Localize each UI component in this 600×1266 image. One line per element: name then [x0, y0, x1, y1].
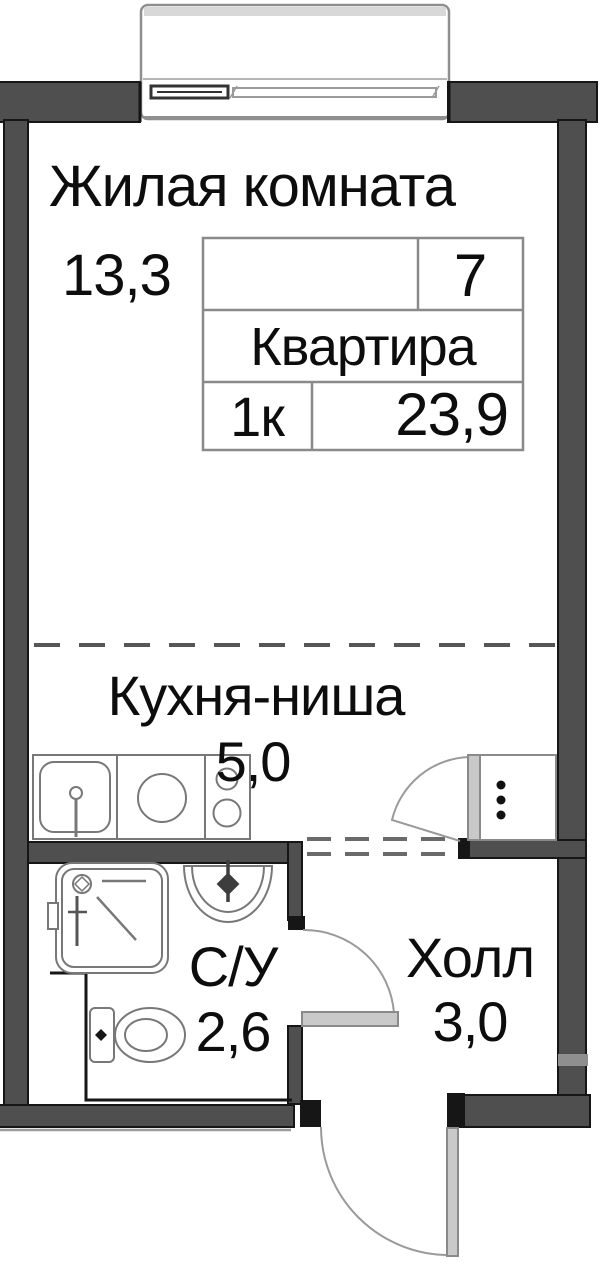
balcony-outline	[141, 5, 449, 119]
entry-door-right-jamb	[447, 1093, 465, 1127]
bathroom-door-leaf	[302, 1012, 398, 1026]
room-area-bathroom: 2,6	[196, 1000, 271, 1063]
wall-bottom-right	[455, 1095, 590, 1127]
wall-bottom-left	[0, 1105, 294, 1127]
apartment-rooms-count: 1к	[230, 385, 285, 448]
toilet	[90, 1008, 185, 1062]
vent-shaft	[480, 755, 556, 840]
entry-door-leaf	[447, 1128, 458, 1256]
balcony-top-shade	[144, 7, 446, 16]
right-wall-step	[558, 1054, 588, 1066]
kitchen-sink	[33, 755, 117, 839]
wall-left	[4, 120, 28, 1107]
room-area-living: 13,3	[62, 243, 171, 308]
room-label-bathroom: С/У	[189, 935, 279, 998]
bathroom-sink	[184, 860, 272, 922]
wall-hall-top	[460, 840, 586, 858]
kitchen-appliance	[117, 755, 205, 839]
bathroom-door	[302, 930, 398, 1026]
floor-plan: 7 Квартира 1к 23,9 Жилая комната 13,3 Ку…	[0, 0, 600, 1266]
room-label-living: Жилая комната	[49, 154, 457, 219]
kitchen-door-swing	[392, 757, 470, 841]
wall-top-right	[448, 82, 597, 122]
dashed-boundary-kitchen-hall	[307, 839, 458, 854]
window	[151, 86, 439, 98]
bathroom-door-swing	[303, 930, 394, 1013]
wall-bathroom-top	[28, 842, 302, 863]
wall-right	[558, 120, 586, 1095]
entry-door	[321, 1127, 458, 1256]
kitchen-door-leaf	[468, 755, 480, 840]
wall-top-left	[0, 82, 140, 122]
wall-bathroom-right-upper	[288, 842, 302, 920]
bathroom-door-jamb	[288, 916, 305, 930]
room-label-kitchen: Кухня-ниша	[108, 664, 407, 727]
shower-cabin	[48, 863, 168, 973]
apartment-number: 7	[454, 242, 486, 309]
apartment-category: Квартира	[250, 317, 477, 377]
room-area-kitchen: 5,0	[216, 730, 291, 793]
room-label-hall: Холл	[406, 926, 534, 989]
entry-door-swing	[321, 1127, 449, 1255]
kitchen-door	[392, 755, 480, 841]
balcony	[141, 5, 449, 119]
room-area-hall: 3,0	[433, 990, 508, 1053]
wall-bathroom-right-lower	[288, 1026, 302, 1104]
apartment-total-area: 23,9	[395, 381, 508, 448]
entry-door-left-jamb	[300, 1100, 321, 1127]
